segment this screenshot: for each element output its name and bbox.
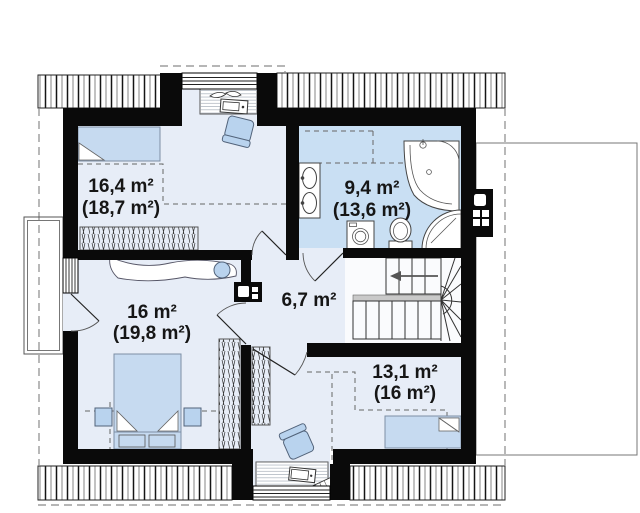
window-top <box>182 73 257 89</box>
laptop-icon <box>289 467 316 483</box>
garage-roof-outline <box>476 143 637 455</box>
room-hallway-label: 6,7 m² <box>282 290 337 311</box>
floor-plan-page: 16,4 m² (18,7 m²) 9,4 m² (13,6 m²) 16 m²… <box>0 0 640 513</box>
room-area-full-value: (13,6 m²) <box>333 200 411 221</box>
room-bedroom-right-label: 13,1 m² (16 m²) <box>372 362 437 404</box>
room-area-value: 13,1 m² <box>372 362 437 383</box>
chimney-right-wall <box>470 189 493 237</box>
toilet <box>389 218 412 249</box>
room-bedroom-top-left-label: 16,4 m² (18,7 m²) <box>82 176 160 219</box>
wardrobe-top-left-room <box>80 227 198 250</box>
roof-overhang-bottom-left <box>38 466 232 500</box>
wardrobe-right-room <box>252 347 270 425</box>
room-bathroom-label: 9,4 m² (13,6 m²) <box>333 178 411 221</box>
room-area-value: 9,4 m² <box>345 178 400 199</box>
pouf-icon <box>214 262 230 278</box>
room-area-value: 16 m² <box>127 302 177 323</box>
floor-plan-drawing: 16,4 m² (18,7 m²) 9,4 m² (13,6 m²) 16 m²… <box>0 0 640 513</box>
writing-desk-top <box>200 88 257 114</box>
window-left <box>63 258 78 293</box>
balcony <box>24 217 63 354</box>
room-area-full-value: (18,7 m²) <box>82 198 160 219</box>
washing-machine <box>347 221 374 249</box>
laptop-icon <box>220 99 248 114</box>
wardrobe-left-room <box>219 339 240 449</box>
chimney-hallway <box>234 282 262 302</box>
roof-overhang-bottom-right <box>350 466 505 500</box>
room-area-full-value: (19,8 m²) <box>113 323 191 344</box>
double-bed <box>114 354 181 449</box>
stair-handrail <box>353 295 441 301</box>
single-bed-right <box>385 416 461 448</box>
double-washbasin <box>299 163 320 218</box>
roof-overhang-top-left <box>38 75 162 108</box>
room-area-value: 16,4 m² <box>88 176 153 197</box>
room-area-value: 6,7 m² <box>282 290 337 311</box>
room-area-full-value: (16 m²) <box>374 383 436 404</box>
roof-overhang-top-right <box>277 73 505 108</box>
single-bed-top-left <box>78 127 160 161</box>
nightstand-right <box>184 408 201 426</box>
window-bottom <box>253 486 330 500</box>
nightstand-left <box>95 408 112 426</box>
